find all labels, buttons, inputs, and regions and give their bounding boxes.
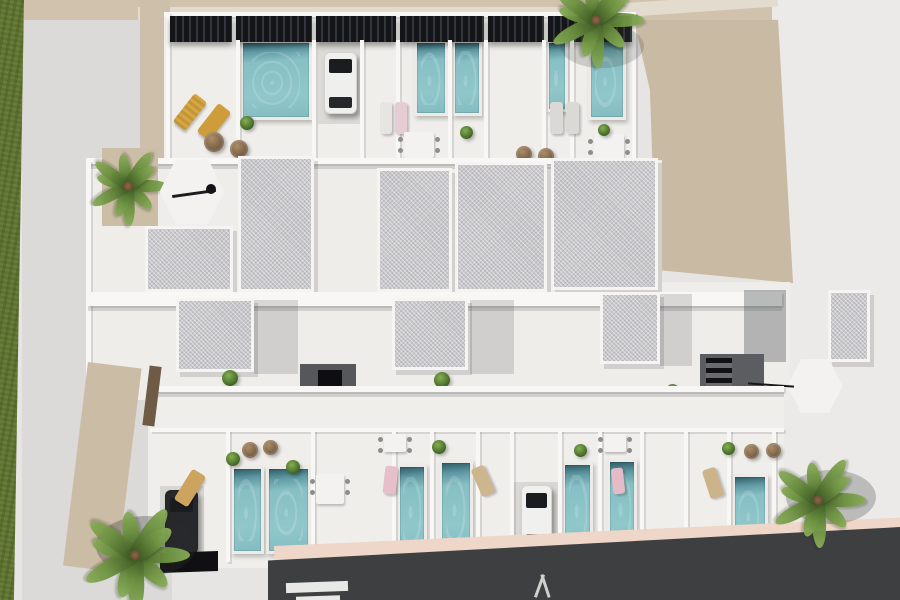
pool xyxy=(452,40,482,116)
plant xyxy=(432,440,446,454)
pergola xyxy=(400,16,484,42)
plant xyxy=(460,126,473,139)
lane-marking xyxy=(296,595,340,600)
pouf xyxy=(242,442,258,458)
towel xyxy=(611,467,626,494)
plant xyxy=(240,116,254,130)
pergola xyxy=(170,16,232,42)
pool xyxy=(414,40,448,116)
wall-shadow xyxy=(744,290,786,362)
patio-desk xyxy=(384,434,406,452)
patio-desk xyxy=(604,434,626,452)
roof-terrace xyxy=(377,168,452,292)
plant xyxy=(226,452,240,466)
bottom-front-wall xyxy=(150,428,784,432)
sun-lounger xyxy=(395,102,407,134)
sun-lounger xyxy=(566,102,579,134)
pergola xyxy=(236,16,312,42)
pool xyxy=(231,466,264,554)
wall-shadow xyxy=(254,300,298,374)
unit-wall xyxy=(448,40,452,164)
plant xyxy=(286,460,300,474)
aerial-site-render xyxy=(0,0,900,600)
unit-wall xyxy=(360,40,364,164)
car-white-top xyxy=(324,52,357,114)
pouf xyxy=(744,444,759,459)
plant xyxy=(222,370,238,386)
pool xyxy=(240,40,312,120)
tree-shadow xyxy=(786,470,876,524)
gravel-patch xyxy=(102,148,158,226)
pergola xyxy=(488,16,544,42)
roof-terrace xyxy=(392,298,468,370)
roof-terrace xyxy=(551,158,658,290)
unit-wall xyxy=(312,40,316,164)
unit-wall xyxy=(311,430,315,562)
dining-set xyxy=(404,132,434,158)
roof-terrace xyxy=(600,292,660,364)
pouf xyxy=(263,440,278,455)
plant xyxy=(574,444,587,457)
roof-terrace xyxy=(828,290,870,362)
dining-set xyxy=(316,474,344,504)
unit-wall xyxy=(226,430,230,562)
pool xyxy=(266,466,311,554)
roof-terrace xyxy=(238,156,314,292)
roof-terrace xyxy=(455,162,547,292)
plant xyxy=(598,124,610,136)
wall-shadow xyxy=(148,392,784,397)
plant xyxy=(722,442,735,455)
roof-terrace xyxy=(176,298,254,372)
tree-shadow xyxy=(96,516,196,576)
lamp-head xyxy=(206,184,216,194)
dining-set xyxy=(594,134,624,160)
unit-wall xyxy=(542,40,546,164)
sun-lounger xyxy=(380,102,392,134)
tree-shadow xyxy=(560,24,644,68)
sun-lounger xyxy=(550,102,563,134)
unit-wall xyxy=(484,40,488,164)
pouf xyxy=(766,443,781,458)
wall-shadow xyxy=(470,300,514,374)
wall-shadow xyxy=(660,294,692,366)
pergola xyxy=(316,16,396,42)
pouf xyxy=(204,132,224,152)
roof-terrace xyxy=(145,226,233,292)
